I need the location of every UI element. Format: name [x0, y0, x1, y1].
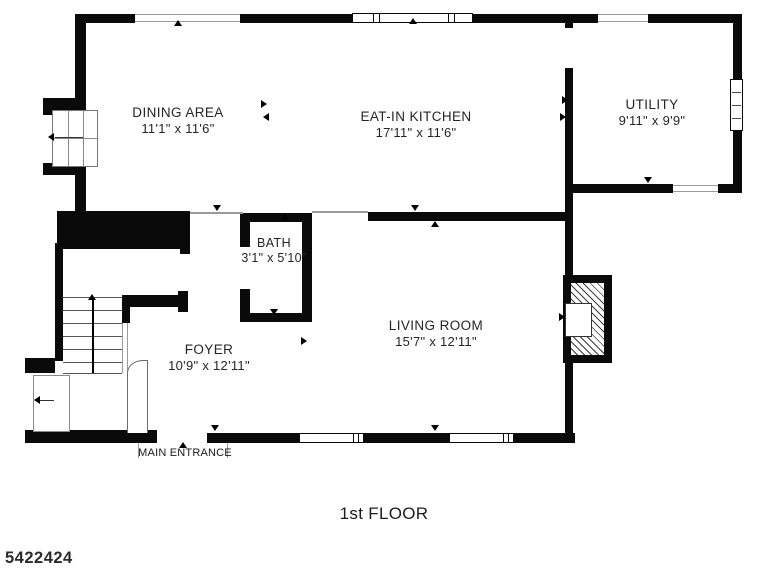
cased-opening-line	[312, 211, 368, 213]
window-opening-line	[135, 14, 240, 15]
window-mullion	[358, 434, 359, 442]
stairs-up-arrow-shaft	[92, 300, 94, 373]
room-name: FOYER	[168, 341, 250, 358]
marker-arrow-icon	[301, 337, 307, 345]
room-dims: 9'11" x 9'9"	[619, 113, 686, 129]
kitchen-living-wall	[368, 212, 573, 221]
stairs-up-arrow-icon	[88, 294, 96, 300]
marker-arrow-icon	[174, 20, 182, 26]
fireplace-firebox	[565, 303, 592, 337]
room-dims: 11'1" x 11'6"	[132, 121, 223, 137]
door-opening-line	[673, 185, 718, 186]
window-mullion	[454, 14, 455, 22]
exterior-wall-top-c	[473, 14, 598, 23]
exterior-wall-bottom	[207, 433, 575, 443]
marker-arrow-icon	[270, 309, 278, 315]
foyer-closet-wall-stub-right	[178, 291, 188, 312]
exterior-wall-top-d	[648, 14, 742, 23]
door-opening-line	[598, 14, 648, 15]
chimney-arrow-shaft	[55, 137, 83, 138]
marker-arrow-icon	[411, 205, 419, 211]
marker-arrow-icon	[213, 205, 221, 211]
window-pane-line	[732, 92, 741, 93]
floor-plan-canvas: DINING AREA 11'1" x 11'6" EAT-IN KITCHEN…	[0, 0, 768, 576]
foyer-closet-wall-stub-left	[122, 295, 130, 323]
window-living-right	[449, 433, 514, 443]
room-label-bath: BATH 3'1" x 5'10"	[241, 236, 306, 266]
chimney-grid-line	[53, 138, 97, 139]
window-pane-line	[732, 105, 741, 106]
window-opening-line	[135, 21, 240, 22]
marker-arrow-icon	[431, 425, 439, 431]
side-door-arrow-shaft	[40, 400, 54, 401]
door-opening-line	[673, 191, 718, 192]
window-living-left	[299, 433, 364, 443]
utility-bottom-wall	[565, 184, 673, 193]
entry-door-leaf	[127, 360, 148, 433]
window-mullion	[353, 434, 354, 442]
room-label-utility: UTILITY 9'11" x 9'9"	[619, 96, 686, 129]
room-dims: 10'9" x 12'11"	[168, 358, 250, 374]
door-opening-line	[598, 21, 648, 22]
cased-opening-line	[190, 212, 243, 214]
marker-arrow-icon	[261, 100, 267, 108]
side-door-arrow-icon	[34, 396, 40, 404]
window-mullion	[373, 14, 374, 22]
marker-arrow-icon	[431, 221, 439, 227]
exterior-wall-left-jog	[25, 358, 55, 373]
room-name: EAT-IN KITCHEN	[360, 108, 471, 125]
stair-tread	[63, 373, 122, 374]
stair-railing-line	[122, 323, 123, 373]
foyer-wall-mass-stub	[180, 211, 190, 254]
marker-arrow-icon	[281, 214, 289, 220]
listing-number: 5422424	[5, 549, 73, 568]
stairs-left-wall	[55, 243, 63, 361]
window-mullion	[508, 434, 509, 442]
main-entrance-label: MAIN ENTRANCE	[138, 447, 232, 459]
room-label-foyer: FOYER 10'9" x 12'11"	[168, 341, 250, 374]
marker-arrow-icon	[644, 177, 652, 183]
room-name: BATH	[241, 236, 306, 251]
kitchen-utility-wall-stub	[565, 14, 573, 28]
exterior-wall-top-b	[240, 14, 352, 23]
room-name: DINING AREA	[132, 104, 223, 121]
bath-wall-right	[302, 213, 312, 322]
marker-arrow-icon	[263, 113, 269, 121]
window-utility-right	[730, 79, 743, 131]
exterior-wall-right-upper	[733, 14, 742, 80]
room-dims: 17'11" x 11'6"	[360, 125, 471, 141]
room-label-dining: DINING AREA 11'1" x 11'6"	[132, 104, 223, 137]
exterior-wall-left-upper	[75, 14, 86, 100]
window-mullion	[379, 14, 380, 22]
floor-title: 1st FLOOR	[340, 504, 429, 524]
chimney-arrow-icon	[48, 133, 54, 141]
marker-arrow-icon	[562, 96, 568, 104]
living-right-wall-lower	[565, 362, 573, 443]
room-dims: 3'1" x 5'10"	[241, 251, 306, 266]
marker-arrow-icon	[560, 113, 566, 121]
room-name: LIVING ROOM	[389, 317, 483, 334]
utility-bottom-wall-stub	[718, 184, 742, 193]
room-label-kitchen: EAT-IN KITCHEN 17'11" x 11'6"	[360, 108, 471, 141]
room-label-living: LIVING ROOM 15'7" x 12'11"	[389, 317, 483, 350]
room-name: UTILITY	[619, 96, 686, 113]
stair-railing-line	[127, 323, 128, 373]
foyer-wall-mass	[57, 211, 190, 249]
marker-arrow-icon	[211, 425, 219, 431]
marker-arrow-icon	[559, 313, 565, 321]
window-mullion	[503, 434, 504, 442]
window-pane-line	[732, 118, 741, 119]
chimney-box	[52, 110, 98, 167]
exterior-wall-left-mid	[75, 163, 86, 212]
room-dims: 15'7" x 12'11"	[389, 334, 483, 350]
marker-arrow-icon	[409, 18, 417, 24]
window-mullion	[448, 14, 449, 22]
